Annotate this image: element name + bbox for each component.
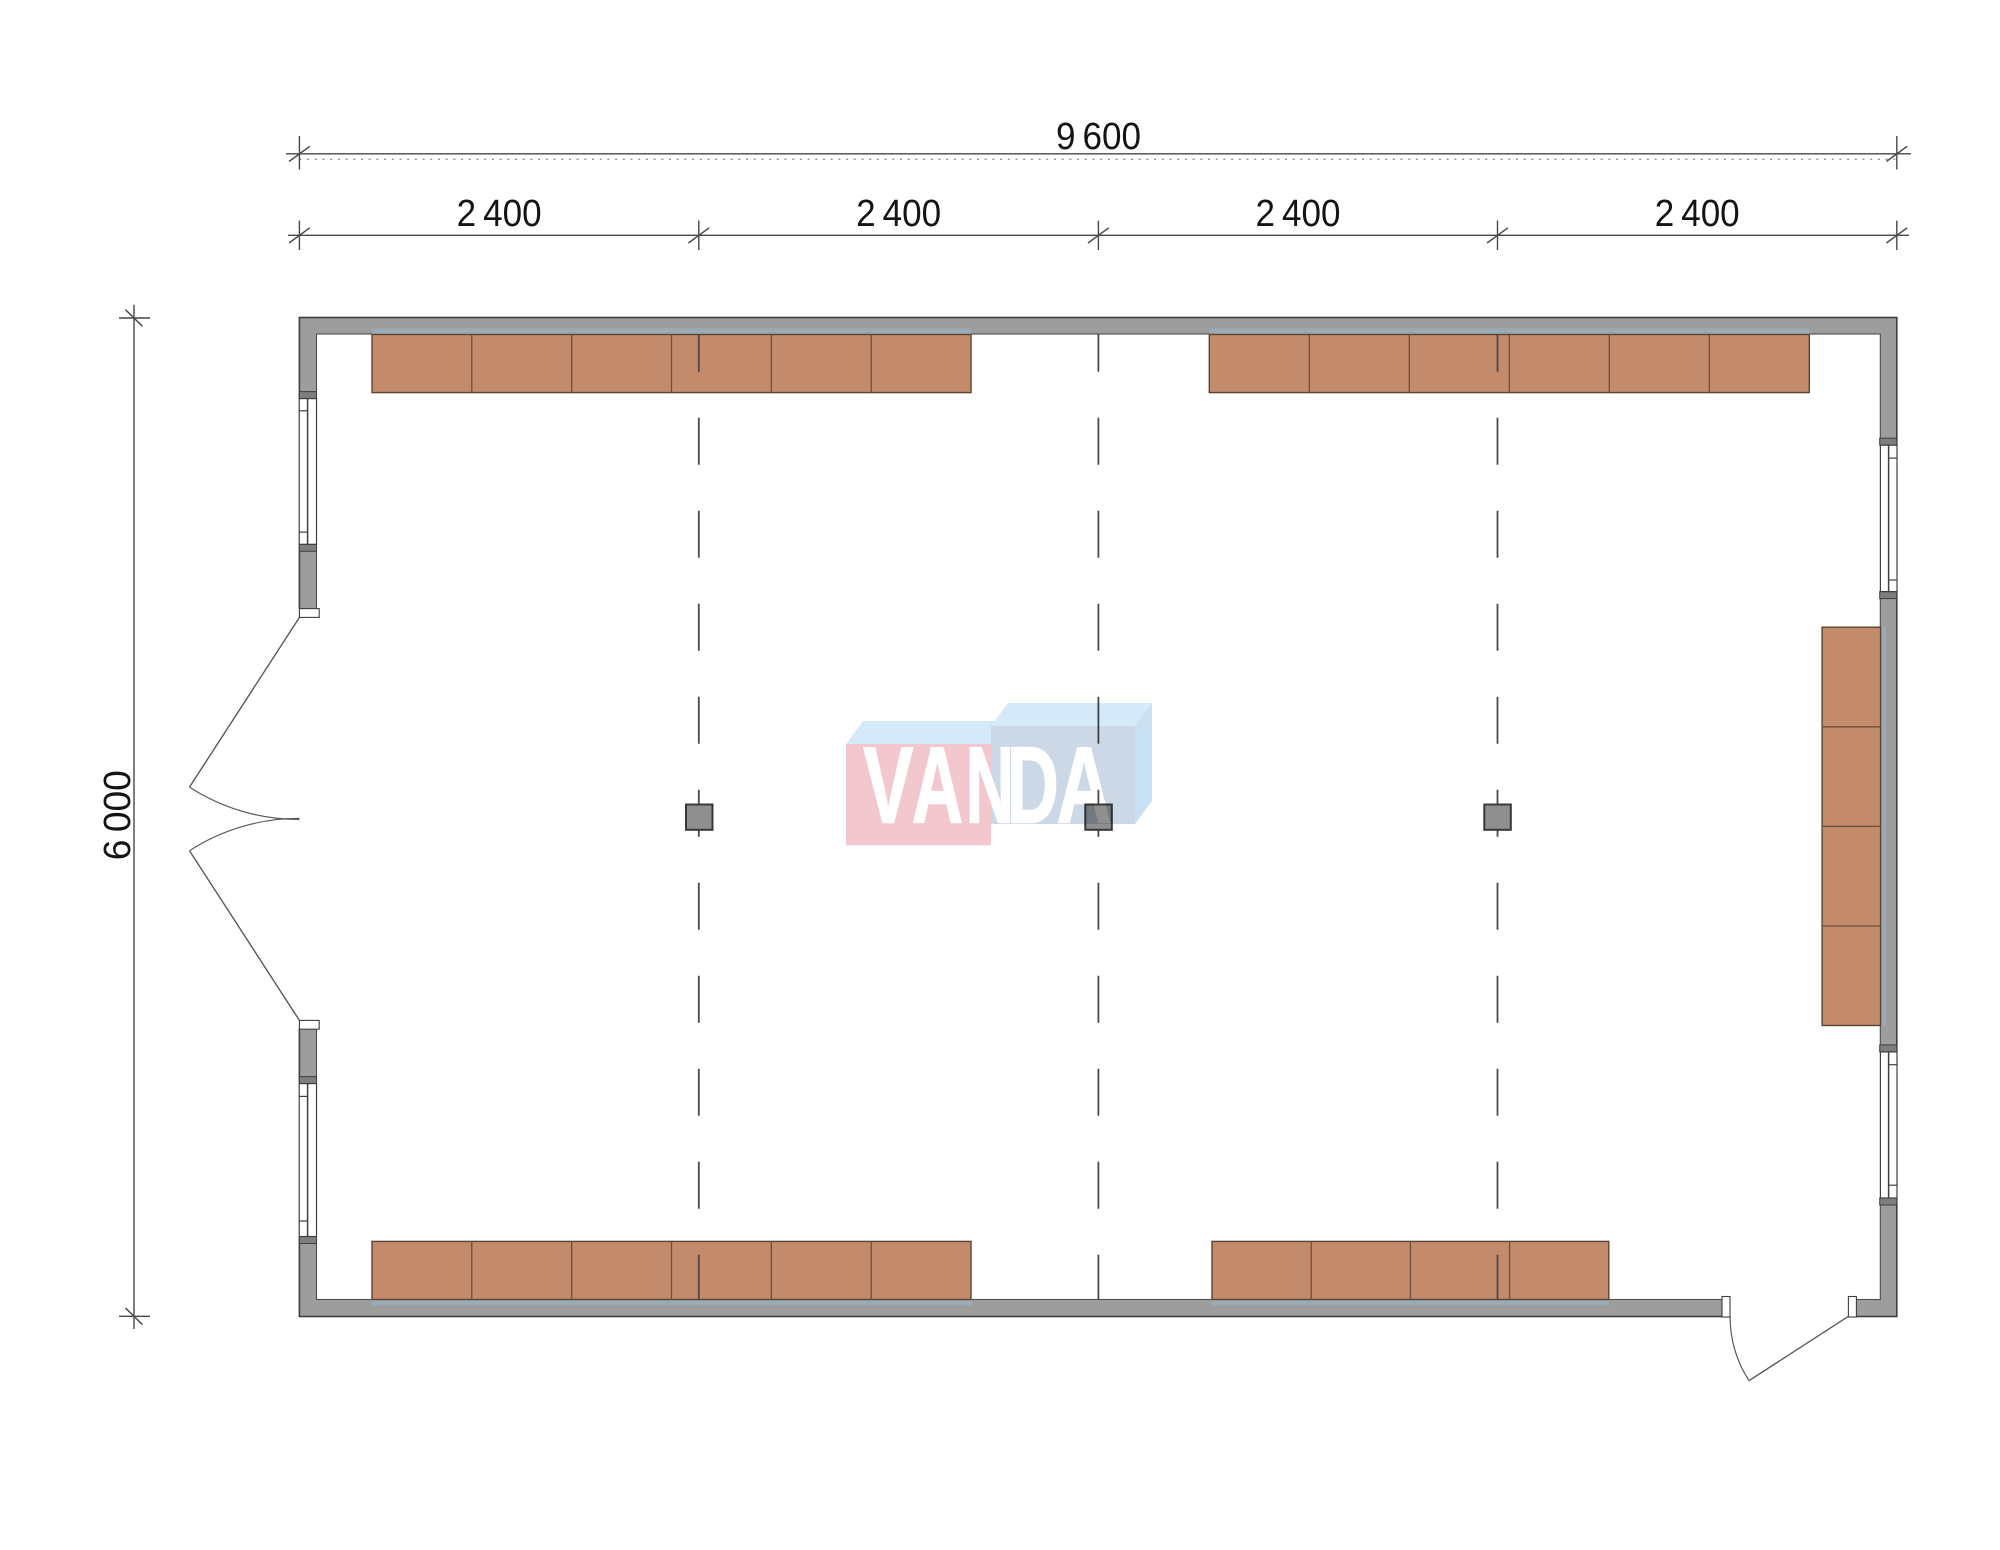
svg-text:9 600: 9 600 xyxy=(1056,116,1141,158)
svg-text:6 000: 6 000 xyxy=(97,770,139,860)
svg-text:2 400: 2 400 xyxy=(856,193,941,235)
svg-text:2 400: 2 400 xyxy=(1256,193,1341,235)
svg-text:2 400: 2 400 xyxy=(1655,193,1740,235)
svg-text:2 400: 2 400 xyxy=(457,193,542,235)
